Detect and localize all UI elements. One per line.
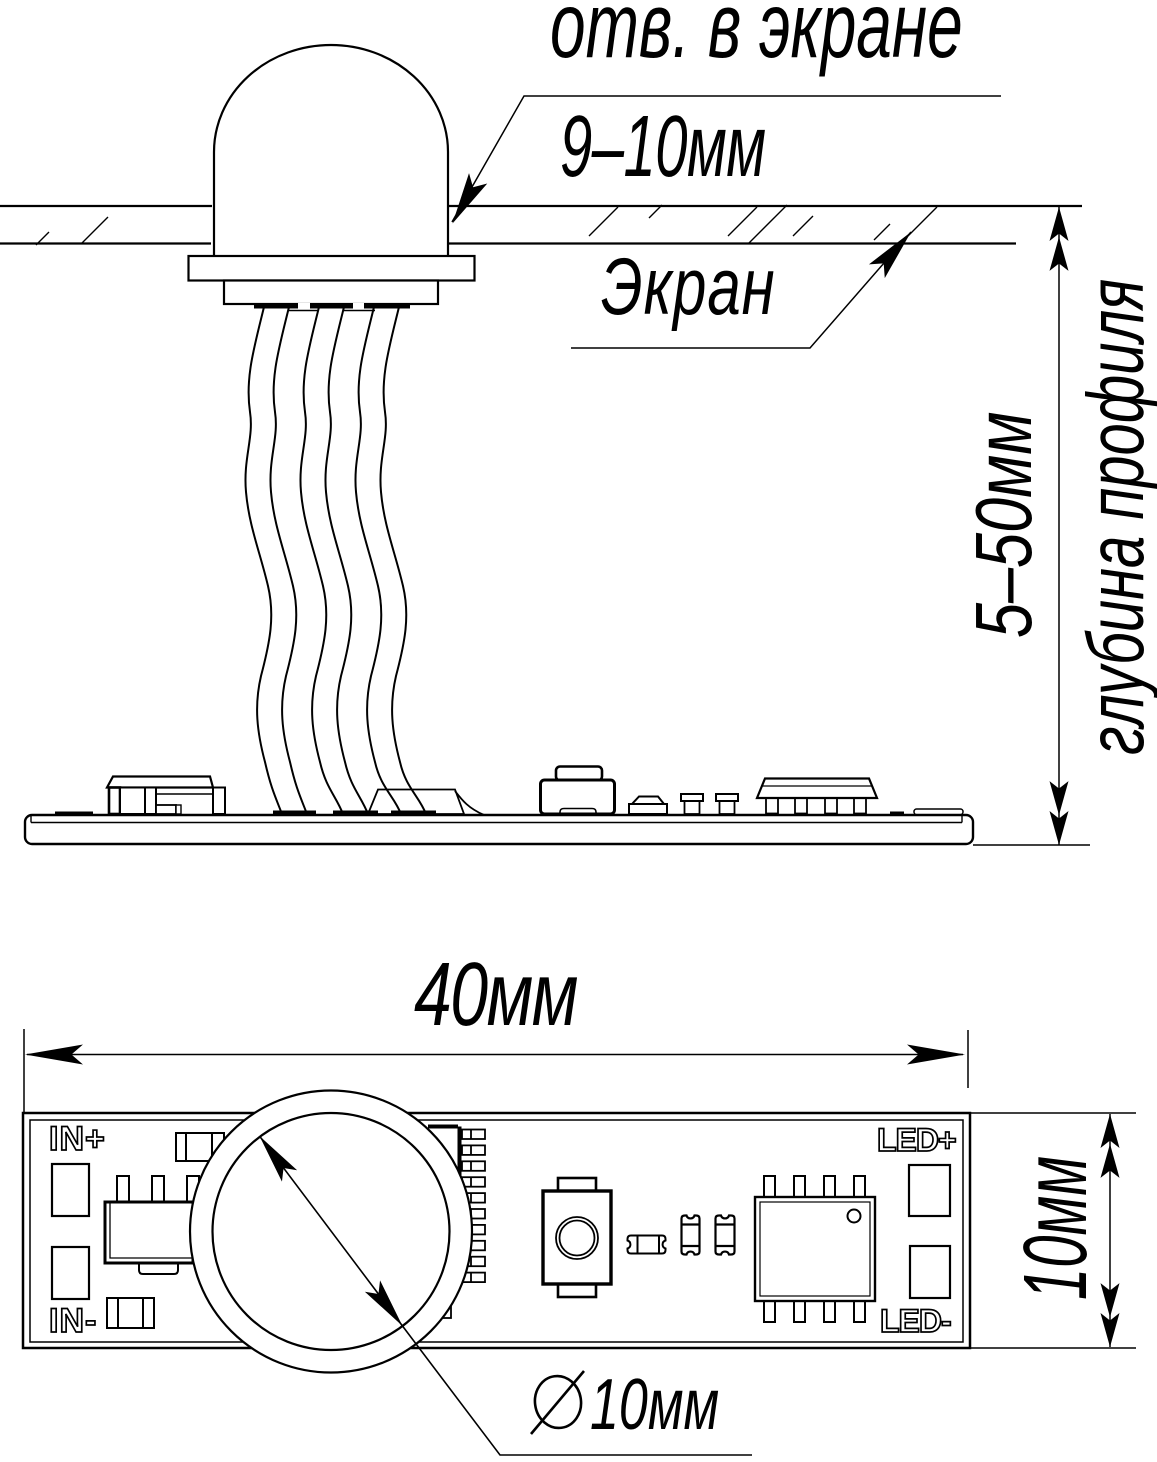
svg-text:LED+: LED+ <box>877 1122 956 1158</box>
svg-text:IN-: IN- <box>49 1302 97 1340</box>
svg-text:40мм: 40мм <box>414 944 578 1044</box>
svg-text:глубина профиля: глубина профиля <box>1071 279 1157 755</box>
svg-text:Экран: Экран <box>601 241 776 332</box>
svg-text:10мм: 10мм <box>1006 1156 1106 1300</box>
svg-text:IN+: IN+ <box>49 1120 106 1158</box>
svg-text:LED-: LED- <box>880 1303 951 1339</box>
svg-text:10мм: 10мм <box>590 1365 719 1446</box>
svg-text:9–10мм: 9–10мм <box>560 97 766 195</box>
svg-text:5–50мм: 5–50мм <box>960 412 1049 638</box>
svg-text:отв. в экране: отв. в экране <box>550 0 963 77</box>
